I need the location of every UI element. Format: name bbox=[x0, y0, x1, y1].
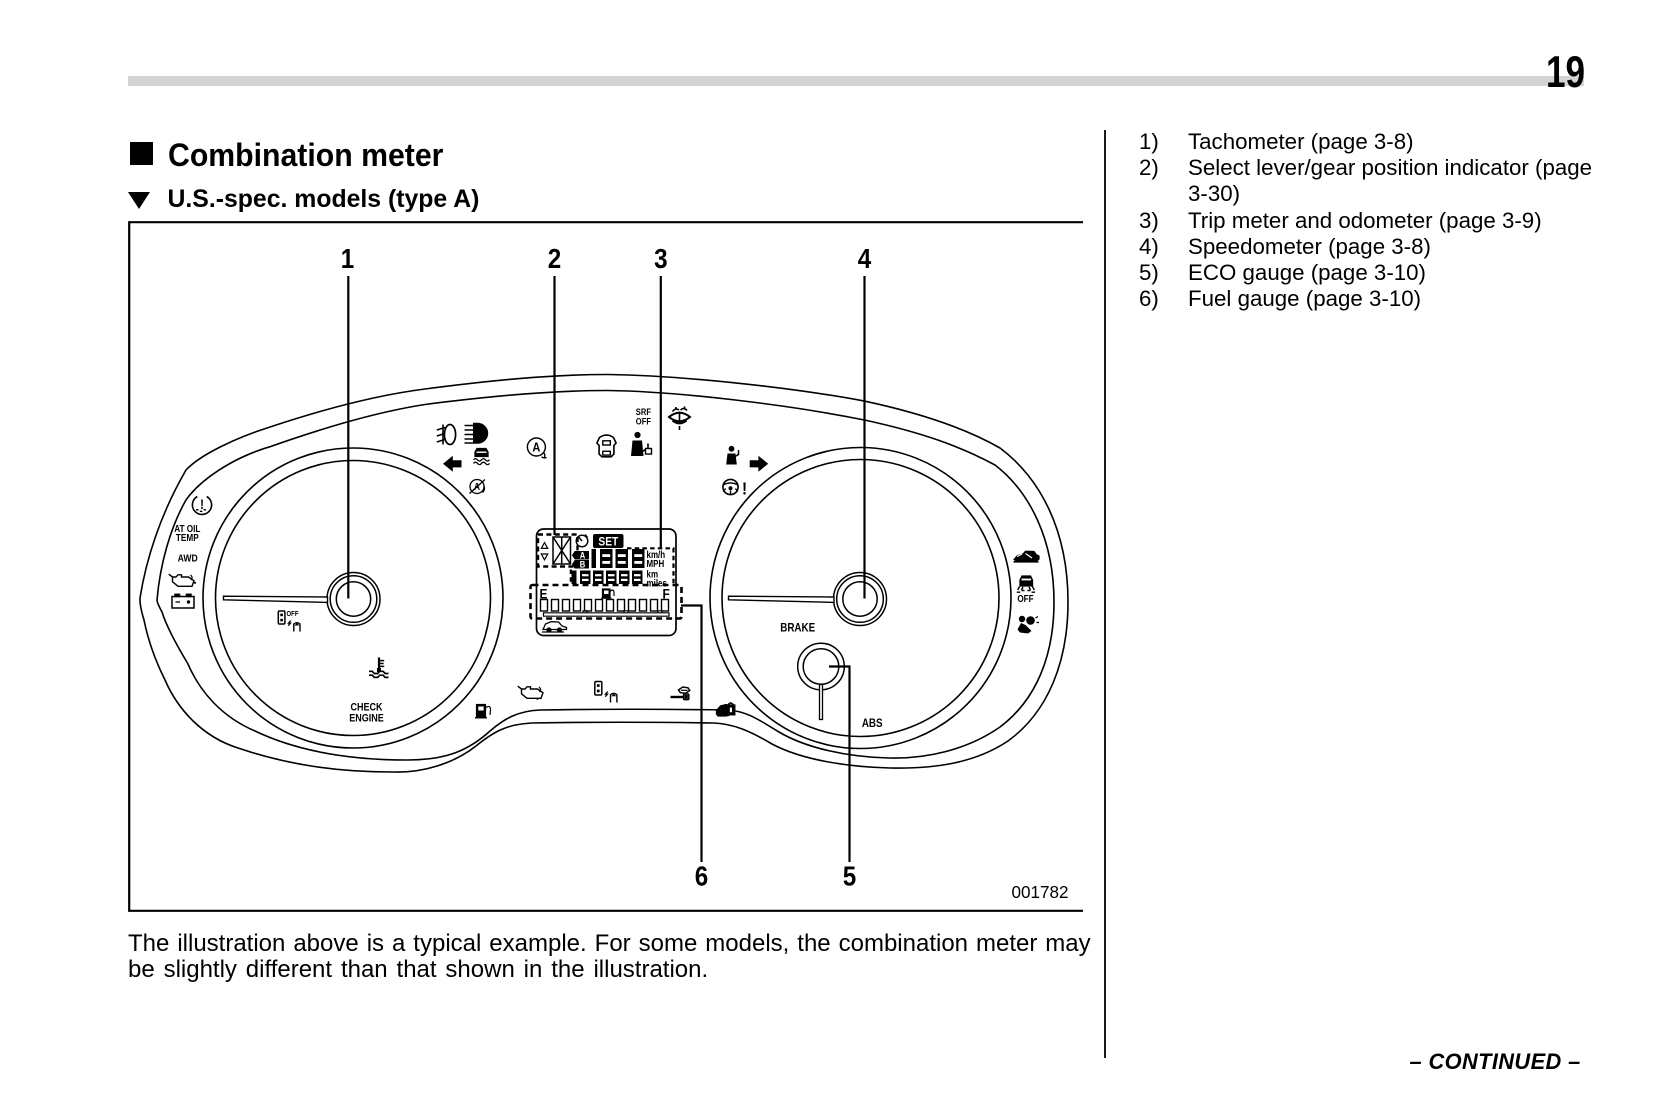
svg-text:MPH: MPH bbox=[647, 558, 665, 569]
svg-text:OFF: OFF bbox=[1017, 593, 1034, 604]
svg-text:ENGINE: ENGINE bbox=[349, 713, 384, 725]
svg-text:OFF: OFF bbox=[287, 610, 299, 618]
svg-text:SET: SET bbox=[598, 536, 618, 549]
svg-text:1: 1 bbox=[341, 245, 354, 275]
svg-text:OFF: OFF bbox=[636, 416, 651, 427]
svg-text:4: 4 bbox=[858, 245, 872, 275]
svg-text:2: 2 bbox=[548, 245, 561, 275]
svg-text:A: A bbox=[532, 440, 540, 455]
svg-text:TEMP: TEMP bbox=[176, 532, 199, 543]
svg-text:5: 5 bbox=[843, 862, 856, 892]
svg-text:B: B bbox=[580, 559, 586, 570]
svg-text:!: ! bbox=[200, 497, 204, 512]
svg-text:!: ! bbox=[742, 478, 747, 498]
svg-text:6: 6 bbox=[695, 862, 708, 892]
svg-text:3: 3 bbox=[654, 245, 667, 275]
svg-text:BRAKE: BRAKE bbox=[780, 622, 815, 635]
svg-text:ABS: ABS bbox=[862, 717, 883, 730]
svg-text:AWD: AWD bbox=[178, 553, 198, 565]
svg-text:001782: 001782 bbox=[1011, 882, 1068, 903]
